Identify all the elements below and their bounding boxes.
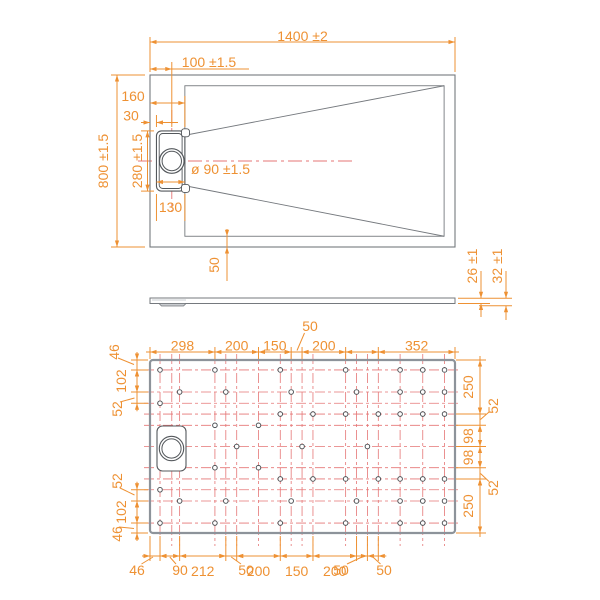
mounting-hole [278,412,283,417]
mounting-hole [278,521,283,526]
dimension-label: 280 ±1.5 [129,134,145,189]
mounting-hole [158,368,163,373]
dimension-label: 52 [485,480,501,496]
dimension-label: 200 [225,338,249,354]
mounting-hole [177,390,182,395]
mounting-hole [158,487,163,492]
dimension-label: 52 [109,401,125,417]
dimension-label: 150 [263,338,287,354]
dimension-label: 102 [113,500,129,524]
mounting-hole [213,465,218,470]
dimension-label: 98 [460,450,476,466]
profile-view [150,298,455,306]
dimension-label: 46 [109,526,125,542]
mounting-hole [398,499,403,504]
mounting-hole [224,390,229,395]
mounting-hole [343,477,348,482]
mounting-hole [343,521,348,526]
mounting-hole [311,477,316,482]
mounting-hole [278,368,283,373]
mounting-hole [420,390,425,395]
mounting-hole [442,412,447,417]
profile-strip [150,298,455,304]
mounting-hole [398,390,403,395]
dimension-label: 298 [171,338,195,354]
mounting-hole [213,368,218,373]
mounting-hole [177,499,182,504]
drain-slot-ear-top [182,129,190,137]
mounting-hole [213,423,218,428]
drain-slot-ear-bottom [182,184,190,192]
dimension-label: 100 ±1.5 [182,54,237,70]
top-view-dimensions: 1400 ±2100 ±1.516030800 ±1.5280 ±1.5130ø… [95,28,455,281]
dimension-label: 150 [285,563,309,579]
dimension-label: 800 ±1.5 [95,134,111,189]
dimension-label: 200 [312,338,336,354]
dimension-label: 32 ±1 [489,248,505,283]
dimension-label: 1400 ±2 [277,28,328,44]
dimension-label: 352 [405,338,429,354]
drain-hole-flange [159,149,184,174]
mounting-hole [343,368,348,373]
dimension-label: 160 [121,88,145,104]
mounting-hole [234,444,239,449]
mounting-hole [376,477,381,482]
mounting-hole [442,390,447,395]
mounting-hole [398,368,403,373]
dimension-label: 90 [172,562,188,578]
mounting-hole [224,499,229,504]
mounting-hole [398,412,403,417]
mounting-hole [213,521,218,526]
mounting-hole [343,412,348,417]
mounting-hole [158,521,163,526]
mounting-hole [289,499,294,504]
mounting-hole [158,401,163,406]
profile-dimensions: 26 ±132 ±1 [458,248,512,320]
mounting-hole [442,477,447,482]
drain-hole-flange [159,436,183,460]
mounting-hole [398,521,403,526]
mounting-hole [311,412,316,417]
shower-tray-drawing: 1400 ±2100 ±1.516030800 ±1.5280 ±1.5130ø… [0,0,600,600]
dimension-label: 52 [485,398,501,414]
dimension-label: 46 [129,562,145,578]
dimension-label: 212 [191,563,215,579]
mounting-hole [376,412,381,417]
mounting-hole [442,521,447,526]
mounting-hole [365,444,370,449]
mounting-hole [256,465,261,470]
mounting-hole [398,477,403,482]
dimension-label: 102 [113,369,129,393]
dimension-label: 130 [159,199,183,215]
dimension-label: 98 [460,428,476,444]
mounting-hole [278,477,283,482]
mounting-hole [354,390,359,395]
dimension-label: 250 [460,494,476,518]
mounting-hole [420,521,425,526]
mounting-hole [442,499,447,504]
dimension-label: 250 [460,375,476,399]
dimension-label: 26 ±1 [464,248,480,283]
drain-boss [159,304,186,307]
dimension-label: 50 [238,562,254,578]
dimension-label: 50 [376,562,392,578]
dimension-label: 50 [302,318,318,334]
dimension-label: 46 [106,344,122,360]
mounting-hole [420,477,425,482]
mounting-hole [420,368,425,373]
construction-lines [138,110,461,546]
dimension-label: 50 [206,257,222,273]
mounting-hole [442,368,447,373]
dimension-label: 52 [109,473,125,489]
mounting-hole [354,499,359,504]
dimension-label: ø 90 ±1.5 [191,161,250,177]
dimension-label: 50 [333,562,349,578]
dimension-label: 30 [123,108,139,124]
mounting-hole [420,499,425,504]
mounting-hole [420,412,425,417]
mounting-hole [256,423,261,428]
technical-drawing-canvas: 1400 ±2100 ±1.516030800 ±1.5280 ±1.5130ø… [0,0,600,600]
mounting-hole [289,390,294,395]
mounting-hole [300,444,305,449]
